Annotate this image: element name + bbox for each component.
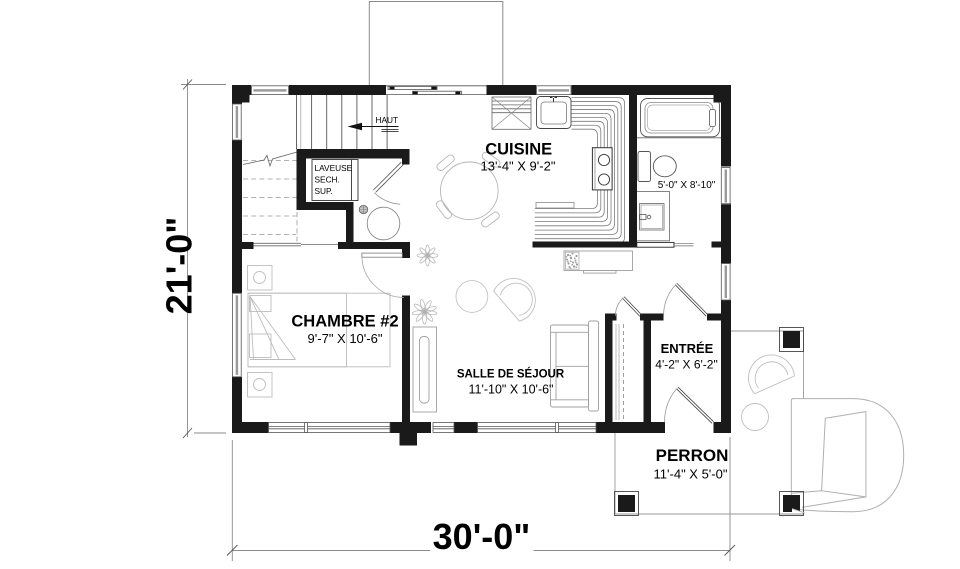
svg-text:11'-10" X 10'-6": 11'-10" X 10'-6" (469, 383, 554, 397)
svg-text:11'-4" X 5'-0": 11'-4" X 5'-0" (654, 467, 728, 482)
svg-text:CUISINE: CUISINE (485, 141, 552, 159)
svg-text:5'-0" X 8'-10": 5'-0" X 8'-10" (658, 180, 716, 191)
svg-text:30'-0": 30'-0" (433, 516, 531, 557)
svg-text:ENTRÉE: ENTRÉE (661, 341, 714, 356)
svg-text:PERRON: PERRON (656, 446, 729, 465)
svg-text:4'-2" X 6'-2": 4'-2" X 6'-2" (655, 358, 717, 372)
svg-text:21'-0": 21'-0" (159, 217, 200, 315)
svg-text:SECH.: SECH. (315, 175, 340, 185)
svg-text:CHAMBRE #2: CHAMBRE #2 (291, 313, 398, 331)
svg-text:SALLE DE SÉJOUR: SALLE DE SÉJOUR (457, 367, 565, 380)
svg-text:LAVEUSE: LAVEUSE (315, 163, 353, 173)
svg-text:HAUT: HAUT (376, 115, 399, 125)
svg-text:SUP.: SUP. (315, 186, 333, 196)
svg-text:13'-4" X 9'-2": 13'-4" X 9'-2" (481, 159, 556, 174)
svg-text:9'-7" X 10'-6": 9'-7" X 10'-6" (308, 331, 383, 346)
